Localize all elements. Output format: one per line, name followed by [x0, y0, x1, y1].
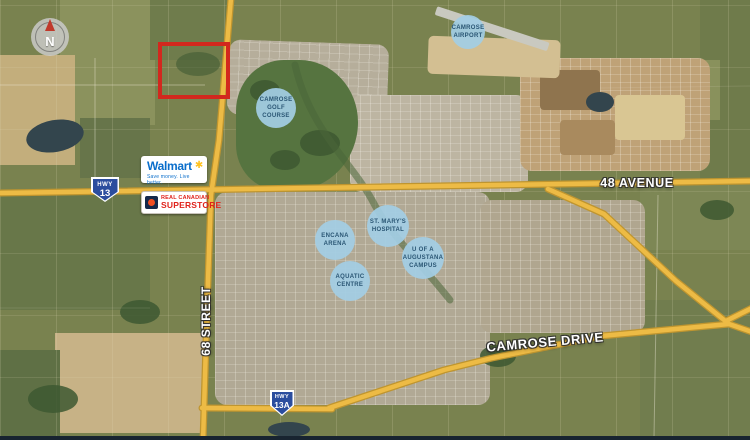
- poi-circle-golf-course: CAMROSE GOLF COURSE: [256, 88, 296, 128]
- rural-road: [600, 86, 750, 88]
- poi-label-line: CAMROSE: [260, 96, 293, 104]
- poi-label-line: AIRPORT: [453, 32, 482, 40]
- poi-label-line: CENTRE: [337, 281, 363, 289]
- poi-circle-airport: CAMROSE AIRPORT: [451, 15, 485, 49]
- road-camrose-drive-casing: [548, 189, 750, 332]
- road-hwy13a: [202, 408, 332, 409]
- poi-label-line: AUGUSTANA: [403, 254, 444, 262]
- walmart-logo: Walmart ✱ Save money. Live better.: [141, 156, 207, 183]
- walmart-wordmark-row: Walmart ✱: [147, 159, 203, 173]
- poi-label-line: ST. MARY'S: [370, 218, 406, 226]
- north-arrow-icon: [45, 19, 55, 31]
- hwy-13-shield-prefix: HWY: [97, 182, 113, 188]
- satellite-map: 48 AVENUE CAMROSE DRIVE 68 STREET CAMROS…: [0, 0, 750, 440]
- poi-label-line: CAMROSE: [452, 24, 485, 32]
- poi-label-line: GOLF: [267, 104, 285, 112]
- poi-label-line: HOSPITAL: [372, 226, 404, 234]
- walmart-wordmark: Walmart: [147, 159, 192, 173]
- poi-label-line: U OF A: [412, 246, 434, 254]
- walmart-tagline: Save money. Live better.: [147, 174, 203, 186]
- superstore-icon-dot: [148, 199, 155, 206]
- property-outline: [158, 42, 230, 99]
- hwy-13-shield-number: 13: [100, 189, 111, 199]
- compass: N: [31, 18, 69, 56]
- poi-label-line: ARENA: [324, 240, 347, 248]
- poi-circle-arena: ENCANA ARENA: [315, 220, 355, 260]
- superstore-icon: [145, 196, 158, 209]
- poi-circle-university: U OF A AUGUSTANA CAMPUS: [402, 237, 444, 279]
- superstore-wordmark: REAL CANADIAN SUPERSTORE: [161, 196, 221, 210]
- poi-circle-aquatic-centre: AQUATIC CENTRE: [330, 261, 370, 301]
- poi-label-line: CAMPUS: [409, 262, 437, 270]
- poi-circle-hospital: ST. MARY'S HOSPITAL: [367, 205, 409, 247]
- bottom-border-strip: [0, 436, 750, 440]
- superstore-line2: SUPERSTORE: [161, 201, 221, 210]
- road-label-68-street: 68 STREET: [199, 286, 213, 355]
- rural-road: [654, 195, 658, 438]
- poi-label-line: AQUATIC: [336, 273, 365, 281]
- superstore-logo: REAL CANADIAN SUPERSTORE: [141, 191, 207, 214]
- poi-label-line: ENCANA: [321, 232, 348, 240]
- walmart-spark-icon: ✱: [195, 161, 203, 171]
- hwy-13a-shield-number: 13A: [274, 401, 290, 410]
- poi-label-line: COURSE: [262, 112, 289, 120]
- road-label-48-avenue: 48 AVENUE: [600, 176, 673, 190]
